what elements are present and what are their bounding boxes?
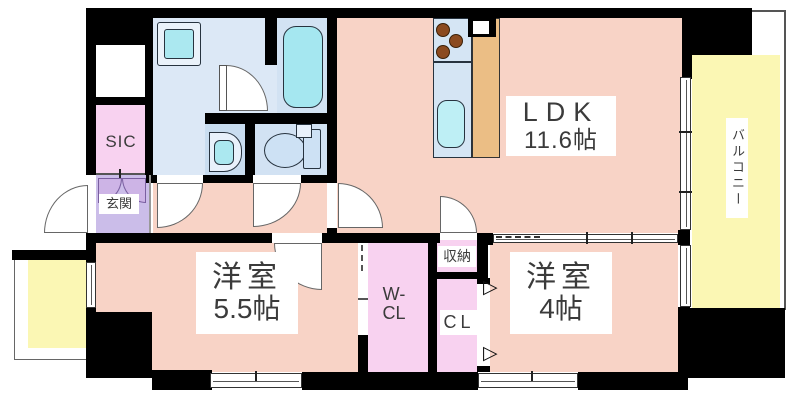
sliding-door-tick (586, 232, 588, 244)
room-label-entrance: 玄関 (99, 194, 139, 214)
sliding-door-tick (631, 232, 633, 244)
toilet-cistern (296, 124, 312, 138)
closet-name: CL (443, 313, 474, 332)
walk-in-closet-tick (358, 298, 368, 300)
wall (578, 372, 688, 390)
ldk-size: 11.6帖 (524, 128, 598, 154)
window-mullion (679, 131, 692, 133)
wall (96, 18, 145, 45)
storage-name: 収納 (443, 249, 471, 264)
wall (146, 175, 157, 183)
window-mullion (679, 191, 692, 193)
room-label-balcony: バルコニー (726, 118, 748, 218)
wall (203, 175, 253, 183)
kitchen-side-counter (472, 18, 500, 158)
closet-door-marker-icon: ▷ (483, 278, 498, 297)
balcony-railing-right (784, 10, 786, 310)
stove-burner (449, 34, 463, 48)
wall (265, 18, 277, 65)
left-balcony-wall (12, 250, 94, 260)
room-label-ldk: LDK 11.6帖 (506, 96, 616, 156)
wall (205, 113, 337, 124)
window (478, 373, 578, 388)
room-label-walk-in-closet: W- CL (371, 281, 417, 327)
wall (685, 308, 785, 378)
wall (302, 372, 478, 390)
wall (477, 243, 488, 278)
window-mullion (531, 371, 533, 381)
left-balcony-floor (28, 260, 88, 348)
closet-door-marker-icon: ▷ (483, 344, 498, 363)
sliding-door-dashes (496, 236, 540, 238)
bathroom-door-leaf (219, 65, 227, 111)
balcony-name: バルコニー (730, 128, 744, 208)
washing-machine-drum (164, 29, 194, 59)
wall (428, 240, 437, 372)
wall (152, 370, 212, 390)
walk-in-closet-dash (361, 245, 363, 271)
window (680, 245, 691, 307)
entrance-step-line (149, 175, 151, 233)
room-label-western-5-5: 洋室 5.5帖 (196, 252, 298, 334)
wcl-line1: W- (383, 285, 406, 304)
bathtub (283, 26, 323, 108)
walk-in-closet-entry (358, 243, 368, 335)
wcl-line2: CL (382, 304, 405, 323)
floor-plan: ▷ ▷ LDK 11.6帖 洋室 5.5帖 洋室 4帖 W- CL CL 収納 … (0, 0, 800, 400)
entrance-door-arc (44, 185, 88, 233)
wall (477, 366, 490, 372)
wall (327, 18, 337, 182)
balcony-railing-top (750, 10, 786, 12)
room-label-shoe-closet: SIC (102, 130, 140, 154)
wall (678, 230, 690, 245)
wall (86, 8, 752, 18)
western-4-size: 4帖 (539, 294, 583, 324)
wall (358, 335, 368, 372)
stove-burner (436, 23, 450, 37)
wall (86, 312, 152, 378)
wall (86, 8, 96, 175)
room-label-closet: CL (440, 310, 478, 335)
kitchen-sink (437, 100, 465, 148)
window-mullion (255, 371, 257, 381)
entrance-name: 玄関 (106, 197, 132, 211)
wall (678, 307, 690, 372)
room-label-storage: 収納 (438, 246, 476, 267)
western-4-name: 洋室 (526, 262, 596, 294)
wall (682, 55, 692, 79)
washbasin-bowl (214, 140, 234, 165)
room-label-western-4: 洋室 4帖 (510, 252, 612, 334)
stove-burner (436, 45, 450, 59)
toilet-bowl (264, 133, 306, 168)
window (680, 77, 691, 230)
wall (682, 8, 752, 55)
western-5-5-size: 5.5帖 (214, 294, 281, 324)
wall (245, 124, 255, 175)
wall (145, 8, 153, 175)
window (86, 262, 96, 308)
wall (437, 272, 477, 279)
kitchen-counter-divider (434, 61, 471, 63)
wall (322, 233, 440, 243)
wall (86, 97, 153, 105)
shoe-closet-name: SIC (105, 133, 136, 151)
western-5-5-name: 洋室 (212, 262, 282, 294)
wall (86, 233, 272, 243)
range-hood-vent (473, 21, 489, 34)
shoe-closet-threshold-tick (119, 169, 121, 178)
ldk-name: LDK (523, 98, 600, 127)
shaft-space (96, 45, 145, 97)
